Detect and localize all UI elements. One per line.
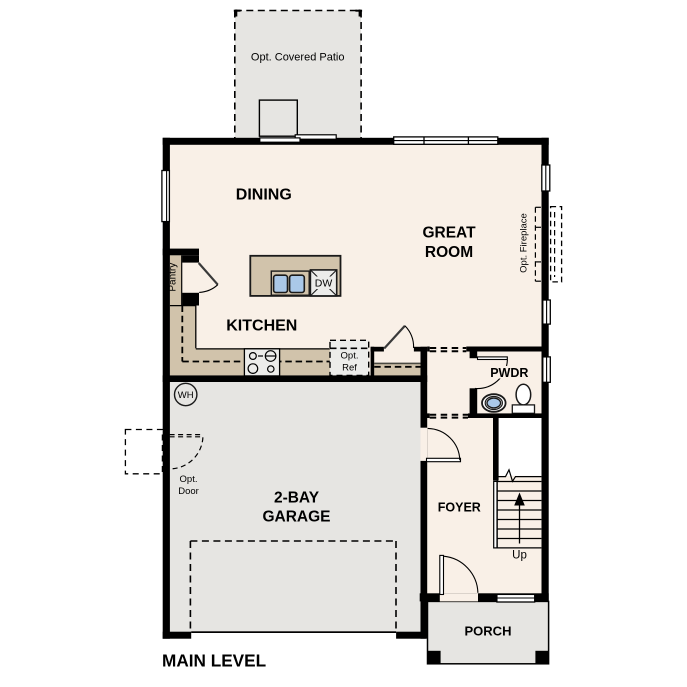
svg-text:Door: Door	[178, 486, 199, 497]
svg-text:GARAGE: GARAGE	[262, 509, 330, 526]
svg-text:Ref: Ref	[342, 363, 357, 374]
svg-text:Opt. Fireplace: Opt. Fireplace	[518, 213, 529, 273]
svg-text:Opt.: Opt.	[341, 351, 359, 362]
svg-text:GREAT: GREAT	[422, 224, 476, 241]
svg-text:Opt.: Opt.	[180, 474, 198, 485]
svg-text:ROOM: ROOM	[425, 244, 473, 261]
svg-text:KITCHEN: KITCHEN	[226, 317, 297, 334]
svg-text:Pantry: Pantry	[167, 263, 178, 292]
svg-text:Opt. Covered Patio: Opt. Covered Patio	[251, 52, 345, 64]
svg-text:DINING: DINING	[236, 187, 292, 204]
svg-text:WH: WH	[178, 390, 194, 401]
svg-text:Up: Up	[512, 550, 527, 562]
svg-text:2-BAY: 2-BAY	[274, 489, 320, 506]
svg-text:DW: DW	[315, 278, 333, 290]
svg-text:PORCH: PORCH	[465, 623, 512, 638]
svg-text:MAIN LEVEL: MAIN LEVEL	[162, 651, 266, 671]
svg-text:FOYER: FOYER	[438, 501, 481, 515]
svg-text:PWDR: PWDR	[490, 366, 528, 380]
